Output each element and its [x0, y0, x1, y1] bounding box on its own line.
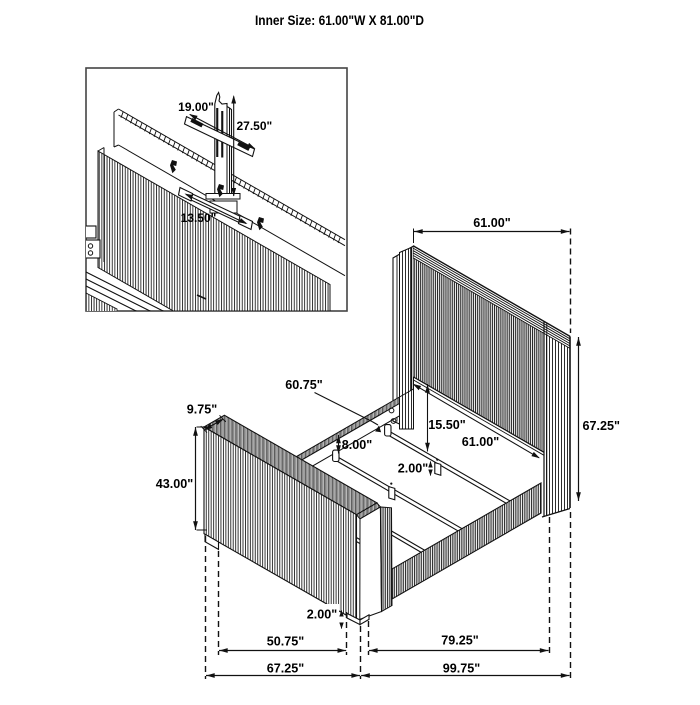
svg-text:79.25": 79.25"	[441, 634, 479, 648]
svg-text:13.50": 13.50"	[181, 211, 217, 225]
svg-text:27.50": 27.50"	[237, 119, 273, 133]
svg-text:8.00": 8.00"	[342, 438, 373, 452]
svg-text:43.00": 43.00"	[156, 477, 194, 491]
svg-text:99.75": 99.75"	[443, 662, 481, 676]
svg-text:9.75": 9.75"	[187, 403, 218, 417]
svg-text:50.75": 50.75"	[267, 635, 305, 649]
svg-text:61.00": 61.00"	[462, 435, 500, 449]
svg-text:67.25": 67.25"	[267, 662, 305, 676]
svg-text:2.00": 2.00"	[398, 462, 429, 476]
svg-text:61.00": 61.00"	[473, 216, 511, 230]
svg-text:Inner Size: 61.00"W X 81.00"D: Inner Size: 61.00"W X 81.00"D	[255, 12, 424, 28]
svg-text:60.75": 60.75"	[285, 378, 323, 392]
svg-text:2.00": 2.00"	[307, 608, 338, 622]
svg-text:19.00": 19.00"	[178, 100, 214, 114]
svg-text:67.25": 67.25"	[583, 419, 621, 433]
svg-text:15.50": 15.50"	[428, 418, 466, 432]
